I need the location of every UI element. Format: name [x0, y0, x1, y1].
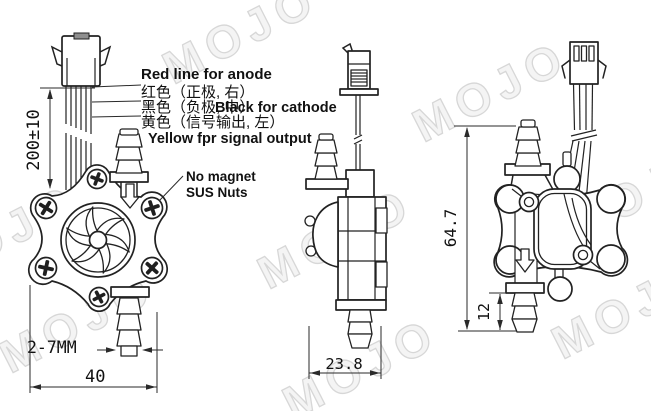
top-stem — [563, 152, 571, 166]
no-magnet-note-line1: No magnet — [186, 169, 256, 184]
wire-leader-lines — [92, 85, 141, 117]
connector-housing — [62, 36, 100, 86]
drawing-canvas: MOJO MOJO MOJO MOJO MOJO MOJO MOJO MOJO — [0, 0, 651, 411]
side-tab — [376, 208, 387, 233]
outlet-flange — [111, 287, 149, 297]
barb-segment — [117, 330, 141, 346]
flow-sensor-drawing: MOJO MOJO MOJO MOJO MOJO MOJO MOJO MOJO — [0, 0, 651, 411]
dim-wire-length-text: 200±10 — [24, 109, 44, 170]
yellow-wire-label-cn: 黄色（信号输出, 左） — [141, 114, 284, 131]
dim-side-depth-text: 23.8 — [325, 355, 362, 373]
dim-back-height-text: 64.7 — [441, 209, 460, 248]
dim-barb-od-text: 2-7MM — [27, 338, 77, 357]
inlet-tip — [120, 129, 138, 135]
fan-impeller — [61, 203, 135, 277]
dim-front-width-text: 40 — [85, 367, 105, 387]
barb-segment — [116, 147, 142, 160]
front-connector — [52, 33, 110, 86]
watermark-text: MOJO — [404, 30, 577, 152]
side-wire — [354, 95, 362, 170]
dim-barb-length-text: 12 — [475, 303, 493, 321]
red-wire-label-en: Red line for anode — [141, 66, 272, 83]
barb-segment — [117, 298, 141, 314]
dim-barb-length: 12 — [475, 293, 510, 330]
top-boss — [554, 166, 580, 192]
barb-segment — [116, 134, 142, 147]
bottom-boss — [548, 277, 572, 301]
nut — [597, 185, 625, 213]
nut — [597, 245, 625, 273]
side-tab — [376, 262, 387, 287]
barb-segment — [117, 314, 141, 330]
no-magnet-note-line2: SUS Nuts — [186, 185, 248, 200]
side-view: 23.8 — [305, 44, 387, 379]
outlet-tip — [121, 346, 137, 356]
connector-latch-right — [100, 47, 110, 66]
note-leader-line — [159, 176, 183, 201]
back-inlet — [505, 120, 557, 195]
back-outlet — [506, 283, 544, 332]
side-connector — [340, 44, 378, 95]
fan-hub — [90, 232, 107, 249]
barb-segment — [116, 160, 142, 173]
side-boss — [346, 170, 374, 197]
connector-notch — [74, 33, 89, 39]
yellow-wire-label-en: Yellow fpr signal output — [148, 131, 312, 147]
side-inlet — [306, 134, 348, 189]
connector-latch-left — [52, 47, 62, 66]
